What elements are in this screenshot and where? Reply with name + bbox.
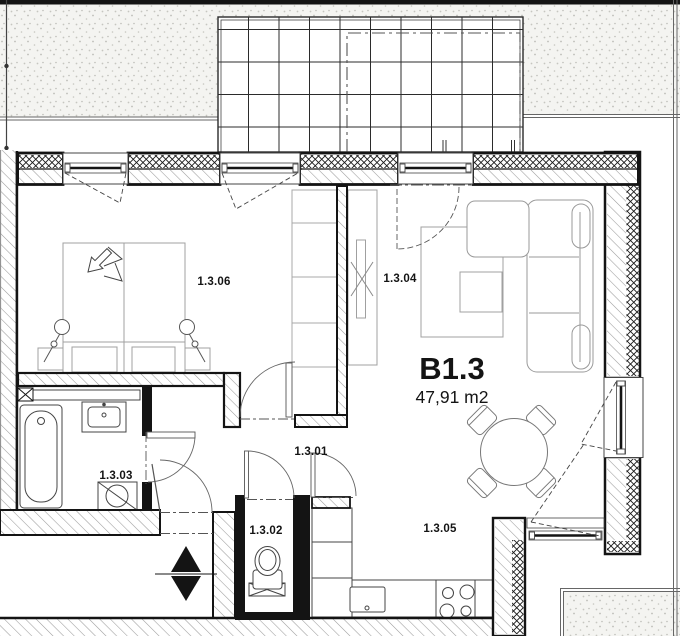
wall-segment	[18, 153, 63, 185]
cooktop	[436, 580, 475, 618]
room-label-1-3-01: 1.3.01	[294, 446, 328, 458]
dining-table	[481, 419, 548, 486]
room-label-1-3-05: 1.3.05	[423, 523, 457, 535]
wardrobe	[292, 190, 337, 367]
washing-machine	[98, 482, 137, 510]
nook-lintel-wall	[295, 415, 347, 427]
wc-south-wall	[235, 612, 310, 620]
bedroom-door-jamb-wall	[224, 373, 240, 427]
unit-area: 47,91 m2	[416, 387, 489, 407]
south-wall	[0, 618, 494, 636]
room-label-1-3-06: 1.3.06	[197, 276, 230, 288]
terrace-top-right	[523, 5, 680, 115]
bathtub	[20, 405, 62, 508]
corridor-east-wall	[213, 512, 235, 618]
wall-segment	[128, 153, 220, 185]
toilet	[253, 547, 282, 590]
bathroom-east-wall-lower	[142, 482, 152, 512]
floor-plan: 1.3.06 1.3.04 1.3.01 1.3.03 1.3.02 1.3.0…	[0, 0, 680, 636]
kitchen-dining-wall	[493, 518, 525, 636]
tv-sideboard	[348, 190, 377, 365]
room-label-1-3-03: 1.3.03	[99, 470, 132, 482]
bedroom-living-partition	[337, 186, 347, 415]
kitchen-lintel-wall	[312, 497, 350, 508]
wc-west-wall	[235, 495, 245, 620]
washbasin	[82, 402, 126, 432]
bedroom-south-wall	[18, 373, 224, 386]
corridor-north-wall	[0, 510, 160, 535]
terrace-bottom-right	[564, 592, 680, 636]
terrace-top-middle-strip	[218, 5, 523, 18]
wall-segment	[473, 153, 638, 185]
unit-title: B1.3	[419, 351, 484, 386]
wall-segment	[300, 153, 398, 185]
room-label-1-3-02: 1.3.02	[249, 525, 282, 537]
bathroom-duct-box	[18, 388, 33, 401]
left-wall	[0, 150, 16, 535]
top-border-bar	[0, 0, 680, 5]
room-label-1-3-04: 1.3.04	[383, 273, 417, 285]
bathroom-ledge	[33, 390, 140, 400]
pergola-grid	[218, 17, 523, 153]
right-wall-pier	[605, 457, 640, 554]
bathroom-east-wall-upper	[142, 386, 152, 436]
kitchen-tall-units	[312, 508, 352, 617]
wc-east-wall	[293, 495, 310, 620]
terrace-top-left	[0, 5, 218, 118]
